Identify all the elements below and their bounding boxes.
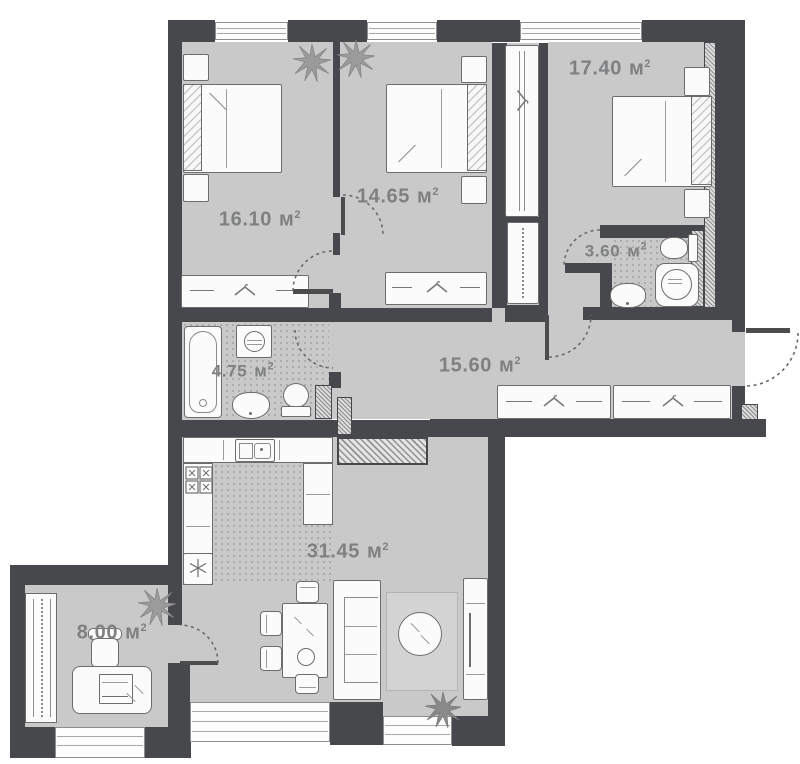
door-arc (180, 625, 218, 663)
toilet-bowl (283, 383, 309, 408)
sink-bowl (254, 443, 271, 459)
hall-wardrobe (613, 385, 731, 419)
shelf-line (506, 401, 532, 402)
blanket-fold (398, 145, 416, 163)
entrance-door-arc (745, 333, 798, 386)
floor-entrance-gap (732, 332, 745, 386)
nightstand (461, 176, 487, 204)
hanger-icon (424, 281, 450, 294)
wall-segment (333, 233, 340, 255)
area-value: 14.65 (357, 186, 410, 208)
door-arc (549, 315, 591, 357)
bed-sheet-line (226, 89, 227, 168)
tv-stand-divider (466, 674, 485, 675)
area-unit: м (627, 241, 640, 260)
shaft-hatch (315, 385, 332, 419)
area-sup: 2 (432, 186, 439, 198)
glass-mark (410, 623, 419, 632)
shaft-hatch (337, 397, 352, 435)
area-sup: 2 (141, 622, 148, 634)
hanger-icon (516, 88, 529, 114)
wall-segment (341, 308, 492, 322)
area-sup: 2 (294, 209, 301, 221)
wall-segment (600, 268, 612, 307)
blanket-fold (624, 159, 642, 177)
shower (655, 263, 699, 307)
wall-segment (488, 437, 505, 743)
wall-segment (642, 20, 745, 42)
washer-mark (247, 344, 262, 345)
window (190, 702, 330, 742)
area-unit: м (125, 622, 140, 644)
cabinet-dotted-line (41, 599, 43, 717)
area-value: 16.10 (219, 209, 272, 231)
drain (249, 412, 252, 415)
fridge (183, 553, 213, 585)
washing-machine (236, 325, 272, 358)
counter-divider (279, 440, 280, 460)
bed (183, 84, 282, 173)
study-cabinet (25, 593, 57, 723)
shaft-hatch (741, 404, 758, 420)
toilet-tank (281, 406, 311, 417)
area-unit: м (254, 361, 267, 380)
counter-divider (306, 494, 330, 495)
counter-divider (186, 526, 210, 527)
bed (386, 84, 487, 173)
sofa (333, 580, 381, 700)
wardrobe (385, 272, 487, 305)
cabinet-line (33, 599, 34, 717)
bed-headboard (183, 84, 202, 171)
drain (199, 399, 207, 407)
shower-mark (668, 283, 682, 284)
window (520, 22, 642, 40)
toilet-bowl (660, 237, 688, 259)
shower-mark (668, 279, 682, 280)
closet-line (524, 51, 525, 211)
drain (626, 302, 629, 305)
closet-line (519, 51, 520, 211)
nightstand (183, 54, 209, 81)
bed-headboard (467, 84, 487, 171)
floor-plan: 16.10м2 14.65м2 17.40м2 3.60м2 4.75м2 15… (0, 0, 800, 764)
table-mark (306, 629, 314, 637)
bed-headboard (691, 96, 712, 185)
window (215, 22, 288, 40)
area-label-living-kitchen: 31.45м2 (307, 541, 389, 564)
tv-stand (463, 578, 488, 700)
wall-segment (168, 20, 215, 42)
wall-segment (168, 420, 433, 437)
shelf-closet (507, 222, 539, 304)
bed (612, 96, 712, 187)
dining-table (282, 603, 328, 678)
toilet-tank (688, 234, 698, 262)
area-value: 8.00 (77, 622, 118, 644)
chair (260, 611, 282, 636)
area-value: 4.75 (212, 361, 248, 380)
wall-segment (505, 305, 548, 322)
kitchen-duct-hatch (337, 437, 428, 465)
wall-segment (168, 308, 333, 322)
area-value: 17.40 (569, 58, 622, 80)
sofa-armrest-line (344, 597, 378, 598)
stove-burners (185, 466, 213, 494)
table-mark (294, 617, 302, 625)
cabinet-line (50, 599, 51, 717)
shelf-line (190, 290, 214, 291)
area-sup: 2 (382, 541, 389, 553)
wardrobe (181, 275, 309, 308)
snowflake-icon (187, 557, 209, 579)
area-sup: 2 (640, 241, 647, 253)
area-label-study: 8.00м2 (77, 622, 147, 645)
wall-segment (10, 565, 182, 585)
shelf-line (460, 287, 480, 288)
window (55, 727, 145, 758)
laptop (99, 674, 133, 704)
sink (232, 392, 270, 419)
plant-icon (291, 42, 333, 84)
bed-sheet-line (441, 89, 442, 168)
faucet (260, 448, 263, 451)
area-sup: 2 (267, 361, 274, 373)
washer-mark (247, 340, 262, 341)
closet-dotted-line (522, 228, 524, 298)
washer-drum (244, 331, 265, 352)
bed-sheet-line (665, 101, 666, 182)
area-value: 3.60 (585, 241, 621, 260)
wall-segment (716, 42, 745, 310)
area-label-hallway: 15.60м2 (439, 355, 521, 378)
area-value: 15.60 (439, 355, 492, 377)
wall-segment (10, 727, 55, 758)
chair (260, 646, 282, 671)
sofa-cushion-line (345, 626, 377, 627)
area-label-bedroom-3: 17.40м2 (569, 58, 651, 81)
kitchen-counter (303, 463, 333, 525)
hanger-icon (660, 395, 686, 408)
wall-segment (430, 419, 766, 437)
sofa-armrest-line (344, 682, 378, 683)
sink (610, 283, 646, 308)
nightstand (684, 67, 710, 96)
counter-divider (223, 440, 224, 460)
nightstand (461, 56, 487, 83)
nightstand (684, 189, 710, 218)
chair (295, 674, 319, 694)
coffee-table (398, 612, 442, 656)
shelf-line (694, 401, 722, 402)
area-unit: м (417, 186, 432, 208)
plant-icon (423, 690, 463, 730)
tall-closet (505, 45, 539, 217)
area-unit: м (499, 355, 514, 377)
shelf-line (392, 287, 412, 288)
area-label-bathroom-small: 3.60м2 (585, 241, 647, 262)
wall-segment (732, 307, 745, 332)
area-label-bedroom-1: 16.10м2 (219, 209, 301, 232)
sofa-cushion-line (345, 654, 377, 655)
wall-segment (168, 663, 190, 740)
tv-screen (469, 613, 471, 667)
wall-segment (492, 223, 507, 308)
chair (296, 581, 319, 603)
wall-segment (330, 702, 383, 745)
sofa-back-line (344, 598, 345, 682)
plate (297, 648, 315, 666)
wall-segment (437, 20, 520, 42)
area-unit: м (279, 209, 294, 231)
hall-wardrobe (497, 385, 611, 419)
door-arc (295, 330, 333, 368)
desk-mark (134, 685, 143, 694)
area-unit: м (629, 58, 644, 80)
tv-stand-divider (466, 603, 485, 604)
hanger-icon (232, 284, 258, 297)
hanger-icon (541, 395, 567, 408)
wall-segment (539, 43, 548, 305)
kitchen-sink (235, 439, 275, 462)
area-unit: м (367, 541, 382, 563)
area-sup: 2 (644, 58, 651, 70)
area-label-bathroom-main: 4.75м2 (212, 361, 274, 382)
plant-icon (335, 38, 377, 80)
area-sup: 2 (514, 355, 521, 367)
window (367, 22, 437, 40)
shelf-line (576, 401, 602, 402)
area-label-bedroom-2: 14.65м2 (357, 186, 439, 209)
desk (72, 666, 152, 714)
sink-basin (239, 443, 253, 459)
glass-mark (420, 635, 429, 644)
door-arc (293, 251, 333, 291)
shelf-line (622, 401, 650, 402)
area-value: 31.45 (307, 541, 360, 563)
wall-segment (583, 307, 732, 320)
blanket-fold (209, 93, 227, 111)
nightstand (183, 174, 209, 202)
shower-basin (661, 269, 692, 300)
